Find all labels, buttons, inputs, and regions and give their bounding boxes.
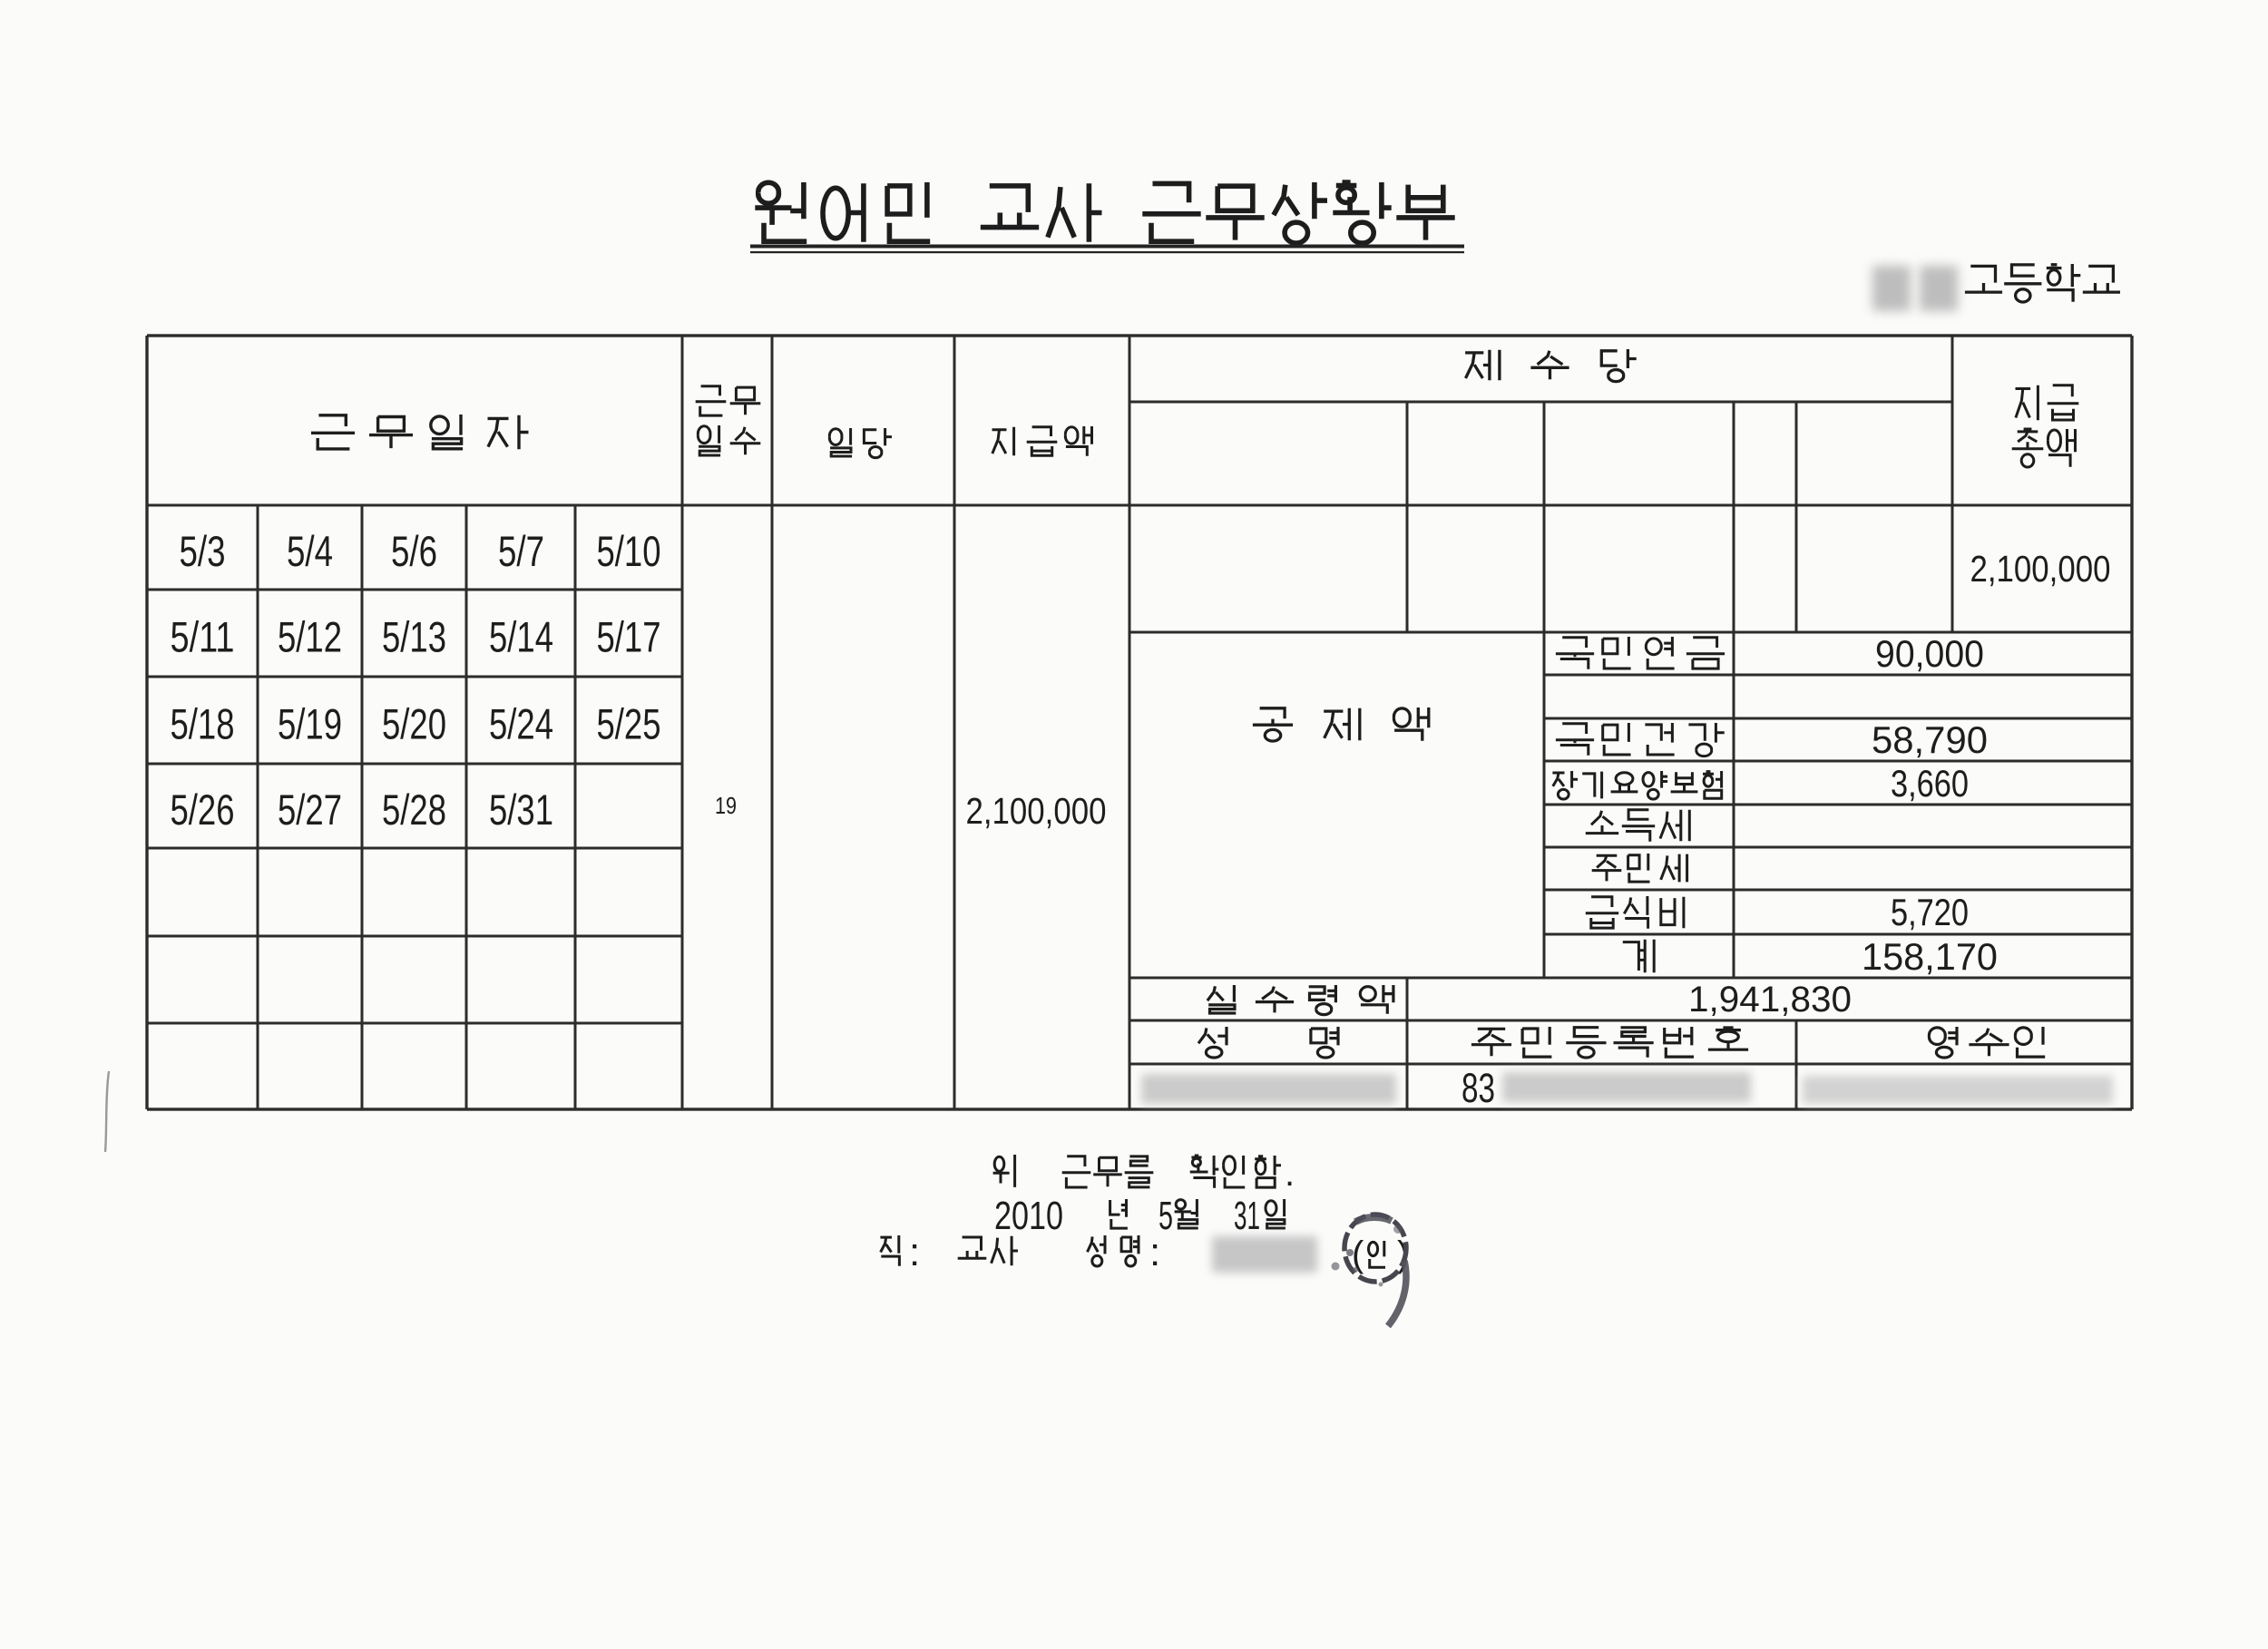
svg-text:5/10: 5/10 (597, 527, 661, 575)
svg-text:5/11: 5/11 (171, 613, 235, 661)
svg-text:3,660: 3,660 (1891, 762, 1969, 805)
svg-text:2010: 2010 (994, 1194, 1063, 1238)
svg-text:31: 31 (1234, 1194, 1260, 1238)
svg-text:5/13: 5/13 (382, 613, 446, 661)
svg-text:5/25: 5/25 (597, 700, 661, 748)
svg-text:58,790: 58,790 (1872, 718, 1988, 761)
svg-text::: : (909, 1230, 920, 1274)
svg-text:5/7: 5/7 (498, 527, 544, 575)
svg-text:5/27: 5/27 (278, 785, 342, 834)
svg-text:2,100,000: 2,100,000 (966, 790, 1107, 832)
svg-text:5/19: 5/19 (278, 700, 342, 748)
svg-text:5/14: 5/14 (489, 613, 553, 661)
svg-text:2,100,000: 2,100,000 (1970, 548, 2111, 590)
svg-text:5/18: 5/18 (171, 700, 235, 748)
svg-text:5/24: 5/24 (489, 700, 553, 748)
svg-text:.: . (1285, 1154, 1295, 1194)
svg-text:158,170: 158,170 (1862, 935, 1998, 978)
svg-text:19: 19 (715, 792, 737, 819)
svg-text::: : (1149, 1230, 1160, 1274)
svg-text:83: 83 (1461, 1065, 1495, 1111)
svg-text:5/20: 5/20 (382, 700, 446, 748)
svg-text:5: 5 (1158, 1194, 1173, 1238)
svg-text:5/12: 5/12 (278, 613, 342, 661)
svg-text:5/6: 5/6 (391, 527, 437, 575)
svg-text:1,941,830: 1,941,830 (1688, 980, 1852, 1020)
svg-text:5/3: 5/3 (180, 527, 226, 575)
svg-text:5/31: 5/31 (489, 785, 553, 834)
svg-text:5/26: 5/26 (171, 785, 235, 834)
svg-text:90,000: 90,000 (1875, 632, 1984, 675)
svg-text:5,720: 5,720 (1891, 891, 1969, 933)
svg-text:5/4: 5/4 (287, 527, 333, 575)
svg-text:5/17: 5/17 (597, 613, 661, 661)
svg-text:5/28: 5/28 (382, 785, 446, 834)
